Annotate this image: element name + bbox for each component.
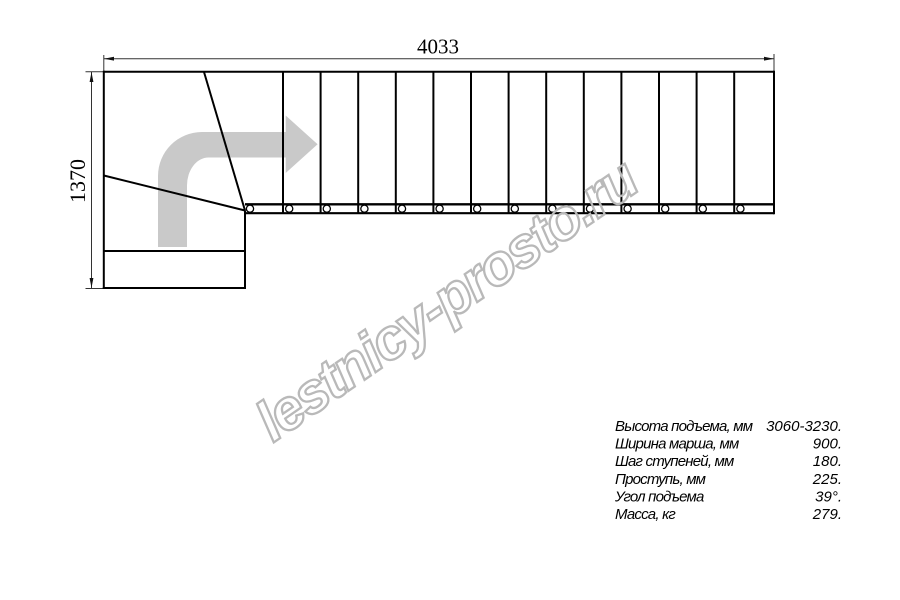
svg-text:Проступь, мм: Проступь, мм (615, 471, 706, 488)
svg-text:900.: 900. (813, 436, 842, 453)
svg-text:225.: 225. (812, 471, 842, 488)
svg-text:4033: 4033 (417, 35, 459, 59)
svg-text:1370: 1370 (65, 159, 90, 203)
svg-text:39°.: 39°. (815, 488, 842, 505)
svg-text:3060-3230.: 3060-3230. (766, 418, 842, 435)
svg-text:279.: 279. (812, 506, 842, 523)
svg-text:Ширина марша, мм: Ширина марша, мм (615, 436, 739, 453)
svg-text:lestnicy-prosto.ru: lestnicy-prosto.ru (244, 146, 649, 453)
svg-text:180.: 180. (813, 453, 842, 470)
svg-text:Угол подъема: Угол подъема (614, 488, 704, 505)
svg-text:Высота подъема, мм: Высота подъема, мм (615, 418, 753, 435)
svg-text:Шаг ступеней, мм: Шаг ступеней, мм (615, 453, 734, 470)
svg-text:Масса, кг: Масса, кг (615, 506, 676, 523)
